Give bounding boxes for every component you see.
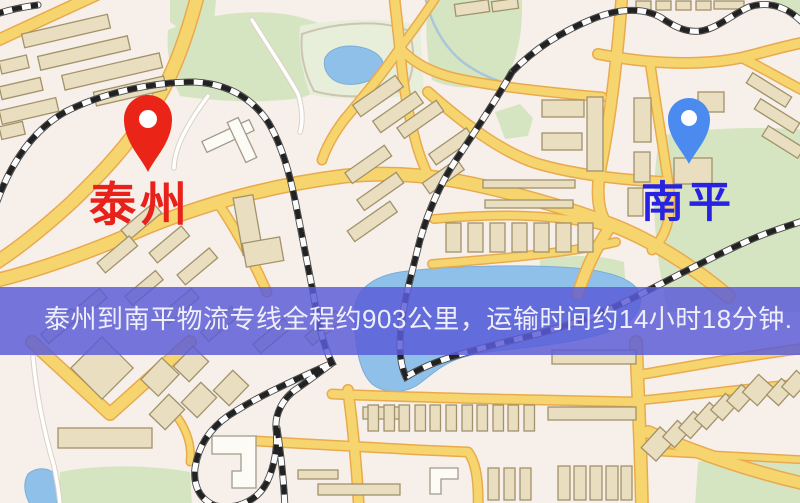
route-banner-text: 泰州到南平物流专线全程约903公里，运输时间约14小时18分钟. xyxy=(44,304,792,334)
origin-label: 泰州 xyxy=(89,180,191,232)
destination-label: 南平 xyxy=(641,179,735,227)
origin-pin-hole xyxy=(139,110,157,128)
map-screenshot: 泰州到南平物流专线全程约903公里，运输时间约14小时18分钟. 泰州 南平 xyxy=(0,0,800,503)
destination-pin-hole xyxy=(681,110,697,126)
map-canvas[interactable]: 泰州到南平物流专线全程约903公里，运输时间约14小时18分钟. 泰州 南平 xyxy=(0,0,800,503)
